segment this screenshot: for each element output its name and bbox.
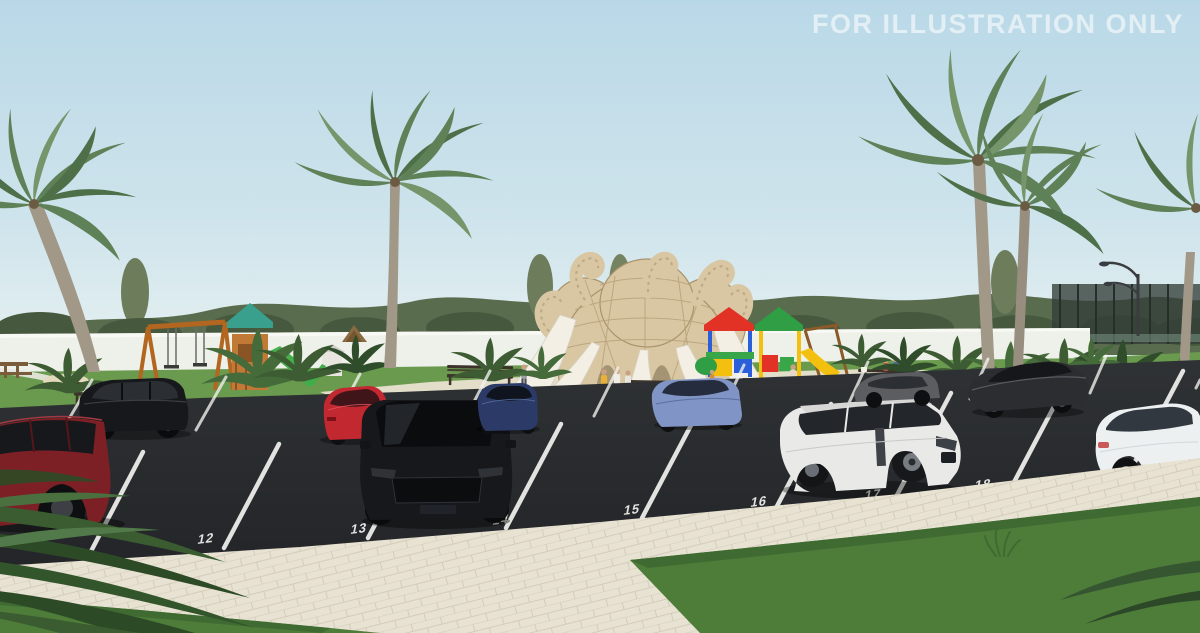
periwinkle-sedan: [652, 378, 742, 432]
space-number-12: 12: [196, 530, 215, 547]
space-number-15: 15: [622, 501, 641, 518]
navy-sedan: [476, 383, 540, 435]
rendering-canvas: 12 13 14 15 16 17 18: [0, 0, 1200, 633]
parking-playground-illustration: 12 13 14 15 16 17 18: [0, 0, 1200, 633]
white-range-rover: [780, 397, 962, 499]
